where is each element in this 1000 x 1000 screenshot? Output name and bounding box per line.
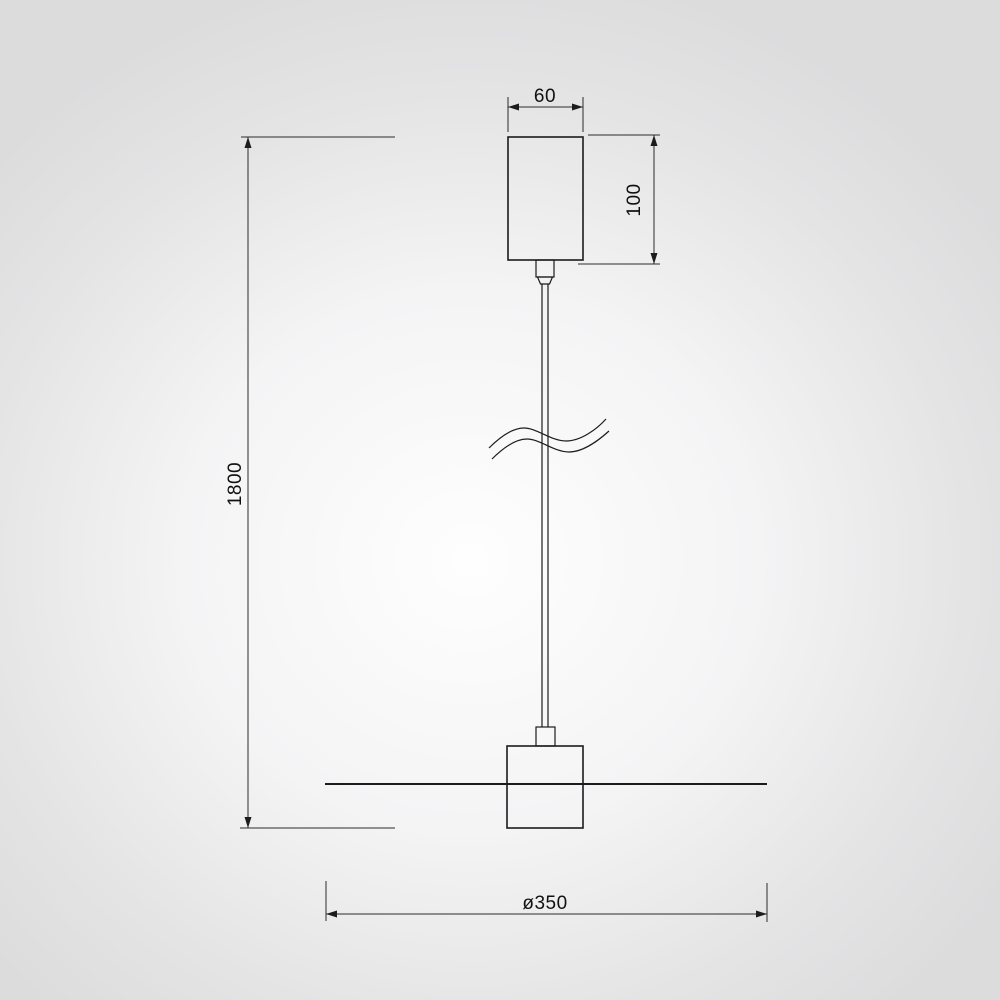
cord-connector-top [536, 260, 554, 277]
dimension-shade-diameter: ø350 [326, 881, 767, 922]
lamp-geometry [325, 137, 767, 828]
dimension-canopy-height: 100 [578, 135, 660, 264]
socket-outline [507, 746, 583, 828]
arrowhead-right [756, 911, 767, 918]
break-mark-lower [492, 431, 609, 459]
cord-connector-bottom [536, 727, 555, 746]
arrowhead-left [508, 104, 519, 111]
arrowhead-top [245, 137, 252, 148]
arrowhead-left [326, 911, 337, 918]
canopy-height-label: 100 [624, 183, 645, 216]
canopy-outline [508, 137, 583, 260]
pendant-lamp-drawing: 60 100 1800 ø350 [0, 0, 1000, 1000]
arrowhead-top [651, 135, 658, 146]
dimension-drop-height: 1800 [225, 137, 395, 828]
shade-diameter-label: ø350 [522, 893, 567, 914]
arrowhead-right [572, 104, 583, 111]
drawing-canvas: 60 100 1800 ø350 [0, 0, 1000, 1000]
cord-connector-top-taper [538, 277, 553, 284]
canopy-width-label: 60 [534, 86, 556, 107]
arrowhead-bottom [245, 817, 252, 828]
dimension-canopy-width: 60 [508, 86, 583, 132]
drop-height-label: 1800 [225, 462, 246, 506]
arrowhead-bottom [651, 253, 658, 264]
